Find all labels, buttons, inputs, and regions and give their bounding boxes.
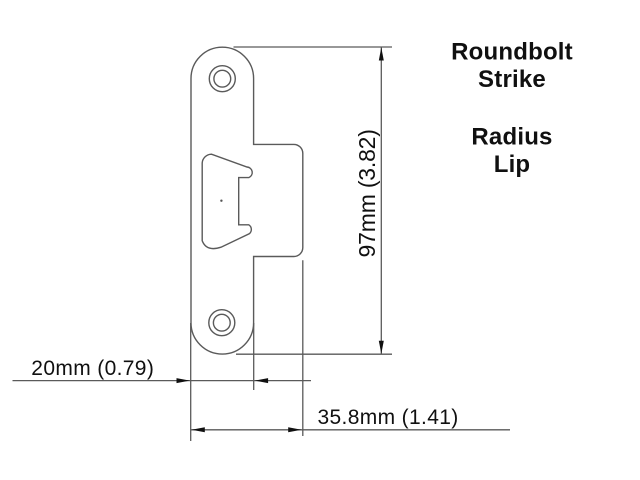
- svg-text:35.8mm (1.41): 35.8mm (1.41): [318, 406, 459, 429]
- svg-text:Radius: Radius: [471, 123, 552, 150]
- svg-text:20mm (0.79): 20mm (0.79): [31, 357, 154, 380]
- svg-text:Strike: Strike: [478, 66, 546, 93]
- svg-text:Lip: Lip: [494, 151, 531, 178]
- svg-text:Roundbolt: Roundbolt: [451, 38, 573, 65]
- svg-text:97mm (3.82): 97mm (3.82): [354, 129, 380, 257]
